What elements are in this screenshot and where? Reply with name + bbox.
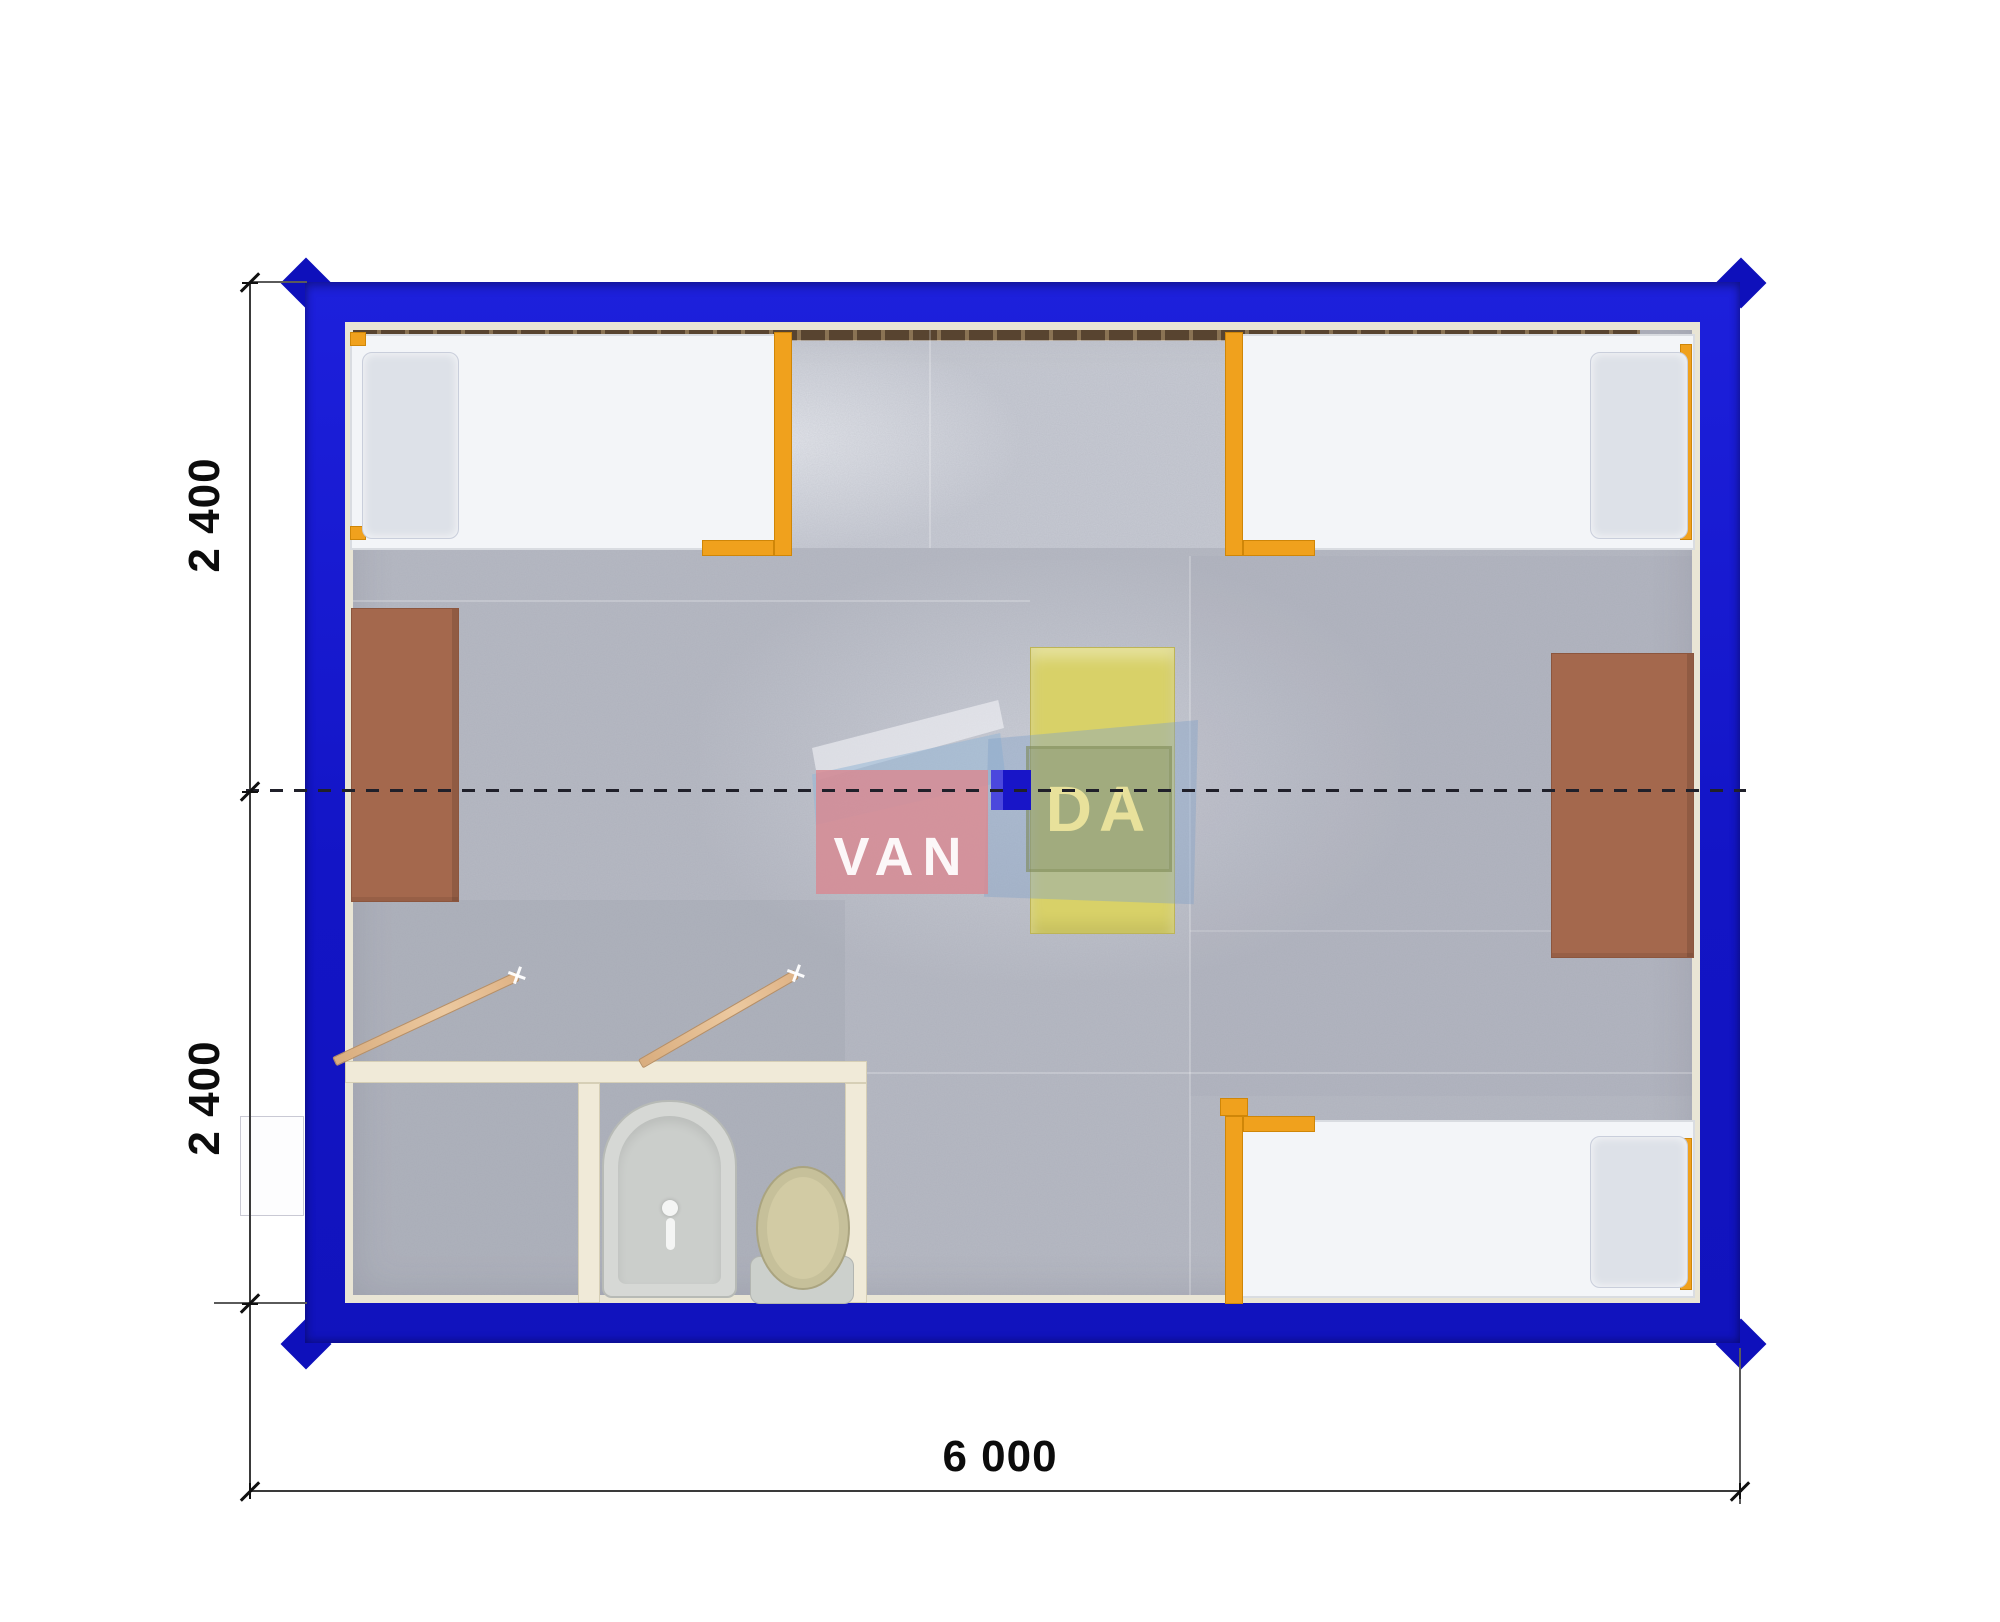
pillow: [1590, 1136, 1688, 1288]
floor-plan-canvas: VAN DA 2 400 2 400 6 000: [0, 0, 2000, 1622]
dimension-tick-dash: [242, 791, 258, 793]
sink-faucet: [662, 1200, 678, 1216]
bed-top-right: [1225, 334, 1695, 550]
desk-left: [351, 608, 459, 902]
bed-top-left: [350, 334, 790, 550]
extension-line-top-left: [251, 281, 307, 283]
bed-frame-foot-rail: [774, 332, 792, 556]
dimension-tick-dash: [242, 1303, 258, 1305]
dimension-tick-dash: [249, 1483, 251, 1499]
dimension-label-left-top: 2 400: [182, 435, 228, 595]
sink: [602, 1100, 737, 1298]
bathroom-partition-wall-left: [578, 1083, 600, 1303]
dimension-line-bottom: [249, 1490, 1742, 1492]
bed-frame-corner: [350, 332, 366, 346]
left-wall-window-marking: [272, 348, 281, 448]
extension-line-right: [1739, 1348, 1741, 1504]
toilet-seat-cover: [767, 1177, 839, 1279]
toilet: [756, 1166, 850, 1290]
dimension-line-left: [249, 282, 251, 1492]
dimension-label-left-bottom: 2 400: [182, 1018, 228, 1178]
bed-frame-foot-rail: [1225, 332, 1243, 556]
sink-faucet-handle: [666, 1218, 675, 1250]
dimension-label-bottom-width: 6 000: [920, 1434, 1080, 1480]
desk-right: [1551, 653, 1694, 958]
pillow: [1590, 352, 1688, 539]
dimension-tick-dash: [1739, 1483, 1741, 1499]
bed-frame-foot-stub: [1243, 540, 1315, 556]
bathroom-partition-wall-horizontal: [345, 1061, 867, 1083]
extension-line-module-joint: [214, 1302, 307, 1304]
module-joint-centerline: [246, 789, 1746, 792]
bed-frame-foot-rail: [1225, 1116, 1243, 1304]
bed-bottom-right: [1225, 1120, 1695, 1298]
bed-frame-foot-stub: [702, 540, 774, 556]
pillow: [362, 352, 459, 539]
bed-frame-foot-stub: [1243, 1116, 1315, 1132]
dimension-tick-dash: [242, 282, 258, 284]
bed-frame-corner: [1220, 1098, 1248, 1116]
